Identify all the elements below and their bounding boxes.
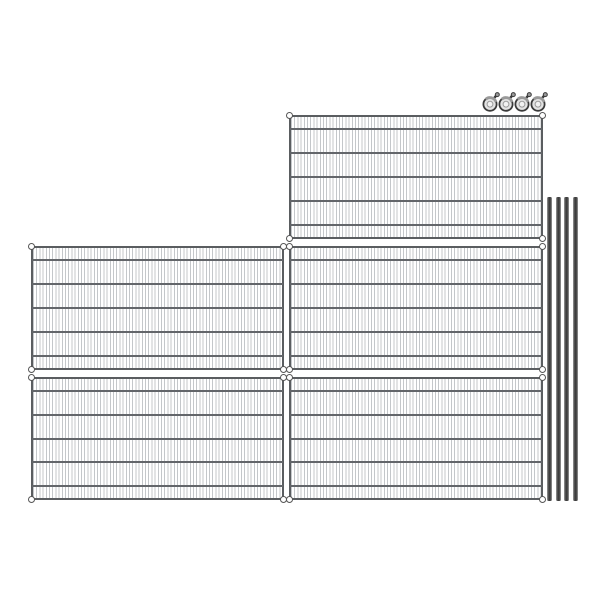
corner-collar-ring [286, 235, 293, 242]
corner-collar-ring [286, 496, 293, 503]
shelf-cross-wire [290, 200, 542, 202]
corner-collar-ring [28, 496, 35, 503]
support-pole-4 [573, 197, 578, 501]
caster-hub [519, 101, 525, 107]
product-image-canvas [0, 0, 600, 600]
corner-collar-ring [286, 112, 293, 119]
corner-collar-ring [539, 366, 546, 373]
support-pole-1 [547, 197, 552, 501]
corner-collar-ring [539, 112, 546, 119]
shelf-cross-wire [32, 331, 283, 333]
shelf-cross-wire [290, 461, 542, 463]
shelf-panel-bottom-left [31, 377, 284, 500]
swivel-caster-4 [530, 91, 548, 112]
corner-collar-ring [28, 374, 35, 381]
caster-hub [487, 101, 493, 107]
shelf-cross-wire [290, 355, 542, 357]
shelf-cross-wire [32, 355, 283, 357]
shelf-cross-wire [32, 283, 283, 285]
caster-hub [503, 101, 509, 107]
caster-stem-knob [543, 93, 547, 97]
corner-collar-ring [286, 243, 293, 250]
shelf-cross-wire [290, 128, 542, 130]
shelf-cross-wire [290, 307, 542, 309]
shelf-cross-wire [290, 283, 542, 285]
shelf-panel-middle-right [289, 246, 543, 370]
shelf-cross-wire [290, 176, 542, 178]
corner-collar-ring [539, 235, 546, 242]
shelf-cross-wire [290, 414, 542, 416]
shelf-cross-wire [290, 152, 542, 154]
shelf-cross-wire [32, 259, 283, 261]
shelf-panel-bottom-right [289, 377, 543, 500]
shelf-cross-wire [32, 414, 283, 416]
corner-collar-ring [539, 496, 546, 503]
shelf-panel-top [289, 115, 543, 239]
shelf-panel-middle-left [31, 246, 284, 370]
corner-collar-ring [539, 374, 546, 381]
shelf-cross-wire [32, 485, 283, 487]
corner-collar-ring [28, 366, 35, 373]
corner-collar-ring [28, 243, 35, 250]
shelf-cross-wire [32, 438, 283, 440]
shelf-cross-wire [32, 461, 283, 463]
support-pole-2 [556, 197, 561, 501]
shelf-cross-wire [32, 390, 283, 392]
shelf-cross-wire [290, 438, 542, 440]
shelf-cross-wire [290, 331, 542, 333]
shelf-cross-wire [290, 259, 542, 261]
corner-collar-ring [286, 374, 293, 381]
corner-collar-ring [539, 243, 546, 250]
support-pole-3 [564, 197, 569, 501]
shelf-cross-wire [290, 224, 542, 226]
caster-hub [535, 101, 541, 107]
corner-collar-ring [286, 366, 293, 373]
shelf-cross-wire [290, 485, 542, 487]
shelf-cross-wire [32, 307, 283, 309]
shelf-cross-wire [290, 390, 542, 392]
